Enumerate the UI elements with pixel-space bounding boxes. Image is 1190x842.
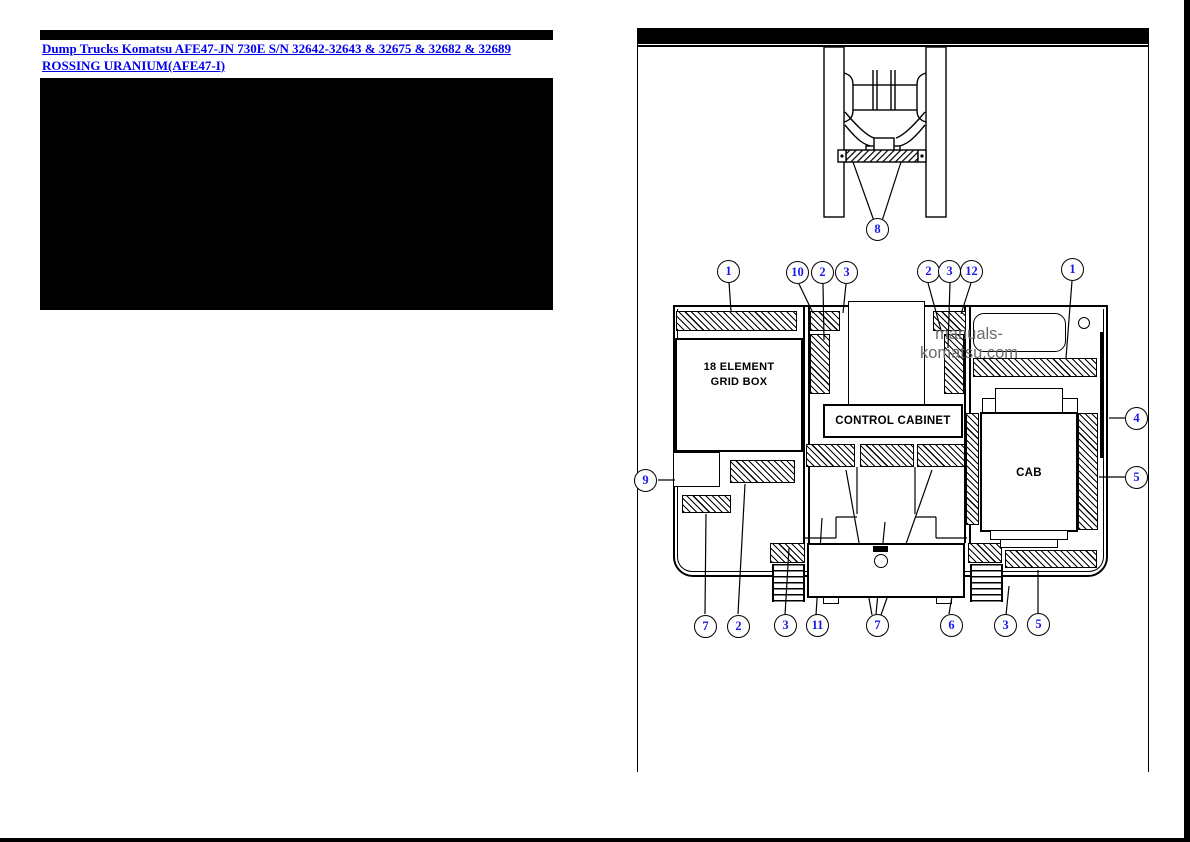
callout-7: 7 xyxy=(694,615,717,638)
callout-3d: 3 xyxy=(994,614,1017,637)
callout-8: 8 xyxy=(866,218,889,241)
control-cabinet-label: CONTROL CABINET xyxy=(823,414,963,430)
callout-3b: 3 xyxy=(938,260,961,283)
cab-label: CAB xyxy=(980,466,1078,482)
page-edge-right xyxy=(1184,0,1190,842)
grid-box-label: 18 ELEMENT GRID BOX xyxy=(675,360,803,390)
callout-3c: 3 xyxy=(774,614,797,637)
callout-2: 2 xyxy=(811,261,834,284)
callout-12: 12 xyxy=(960,260,983,283)
callout-10: 10 xyxy=(786,261,809,284)
platform-slot xyxy=(873,546,888,552)
manual-title-link[interactable]: Dump Trucks Komatsu AFE47-JN 730E S/N 32… xyxy=(42,41,551,75)
grid-box-label-line2: GRID BOX xyxy=(675,375,803,390)
page-edge-bottom xyxy=(0,838,1190,842)
callout-1: 1 xyxy=(717,260,740,283)
callout-1b: 1 xyxy=(1061,258,1084,281)
grid-box-label-line1: 18 ELEMENT xyxy=(675,360,803,375)
engine-bay-lines xyxy=(805,467,967,538)
manual-page: { "colors":{ "link_blue":"#0000EE", "cal… xyxy=(0,0,1190,842)
callout-5: 5 xyxy=(1125,466,1148,489)
callout-2c: 2 xyxy=(727,615,750,638)
callout-9: 9 xyxy=(634,469,657,492)
link-strip: Dump Trucks Komatsu AFE47-JN 730E S/N 32… xyxy=(40,40,553,78)
watermark: manuals-komatsu.com xyxy=(888,325,1050,363)
platform-hole xyxy=(874,554,888,568)
callout-4: 4 xyxy=(1125,407,1148,430)
callout-7b: 7 xyxy=(866,614,889,637)
callout-5b: 5 xyxy=(1027,613,1050,636)
truck-front-view xyxy=(824,47,946,217)
callout-11: 11 xyxy=(806,614,829,637)
callout-3: 3 xyxy=(835,261,858,284)
callout-6: 6 xyxy=(940,614,963,637)
callout-2b: 2 xyxy=(917,260,940,283)
